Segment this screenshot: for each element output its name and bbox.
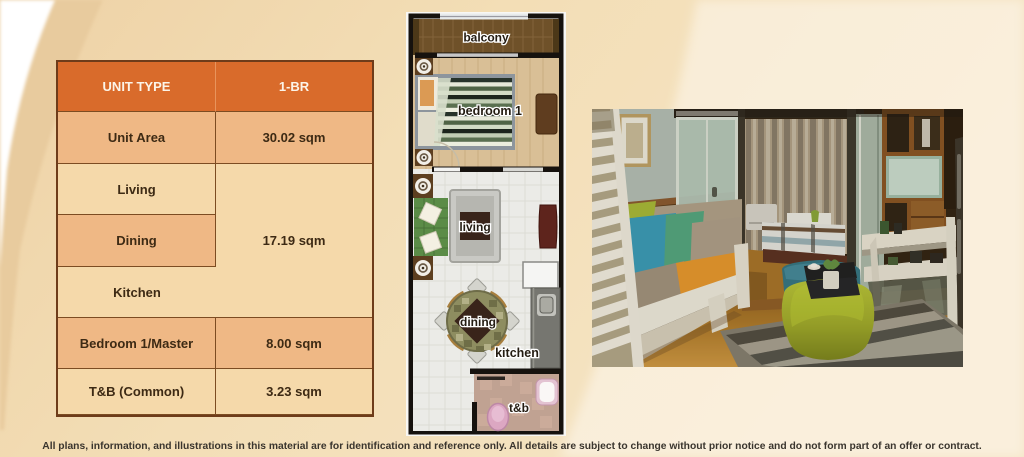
svg-text:dining: dining [460, 315, 496, 329]
svg-text:living: living [459, 220, 490, 234]
svg-text:t&b: t&b [509, 401, 529, 415]
svg-text:bedroom 1: bedroom 1 [458, 104, 522, 118]
svg-text:kitchen: kitchen [495, 346, 539, 360]
svg-text:balcony: balcony [463, 31, 509, 45]
